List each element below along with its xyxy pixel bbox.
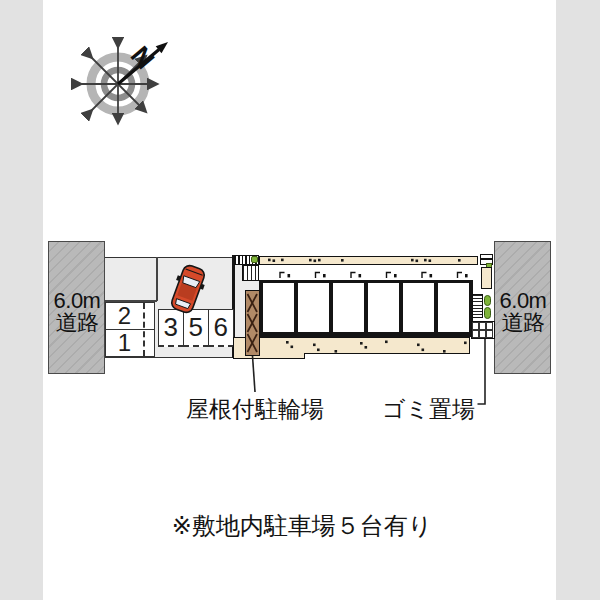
covered-bicycle-parking [245,290,260,356]
page-margin-left [0,0,43,600]
parking-space-1-number: 1 [118,329,131,357]
unit-room [368,283,400,332]
unit-room [403,283,435,332]
building-units [259,280,473,337]
unit-room [298,283,330,332]
unit-door-marks [280,273,468,279]
parking-space-6-number: 6 [214,312,228,343]
garbage-area-label: ゴミ置場 [382,394,475,425]
parking-space-dashed-divider [143,303,145,356]
road-left-type: 道路 [42,312,112,334]
garbage-cell [486,322,493,330]
parking-space-2: 2 [106,303,154,330]
road-right-label: 6.0m 道路 [490,290,556,333]
parking-space-6: 6 [208,309,234,347]
site-plan-image: N 6.0m 道路 6.0m 道路 2 1 3 5 6 [0,0,600,600]
north-label: N [125,41,161,75]
bicycle-label-leader-line [253,356,256,392]
parking-space-1: 1 [106,330,154,357]
building-north-balcony-strip [259,256,478,265]
hedge [484,307,491,319]
entrance-steps-left [242,265,259,281]
unit-room [333,283,365,332]
road-right-width: 6.0m [490,290,556,312]
road-left-width: 6.0m [42,290,112,312]
garbage-cell [486,330,493,338]
parking-spaces-1-2: 2 1 [105,302,155,357]
lot-division-line-vertical [156,257,158,301]
parking-space-3-number: 3 [164,312,178,343]
hedge [484,295,491,307]
road-right-type: 道路 [490,312,556,334]
road-left-label: 6.0m 道路 [42,290,112,333]
garbage-cell [479,330,486,338]
car-icon [165,262,211,316]
garbage-cell [472,322,479,330]
garbage-area [471,321,495,339]
staircase [472,294,483,318]
building-south-strip-step [233,353,305,359]
hedge-small [251,256,259,263]
parking-space-5-number: 5 [189,312,203,343]
page-margin-right [556,0,600,600]
garbage-cell [479,322,486,330]
parking-space-2-number: 2 [118,302,131,330]
garbage-label-leader-line [478,339,486,404]
parking-count-note: ※敷地内駐車場５台有り [148,510,456,542]
garbage-cell [472,330,479,338]
unit-room [438,283,470,332]
compass-rose-icon: N [70,25,180,135]
building-south-corridor-strip [233,337,470,354]
entrance-porch [481,267,492,289]
bicycle-parking-label: 屋根付駐輪場 [186,394,324,425]
unit-room [263,283,295,332]
